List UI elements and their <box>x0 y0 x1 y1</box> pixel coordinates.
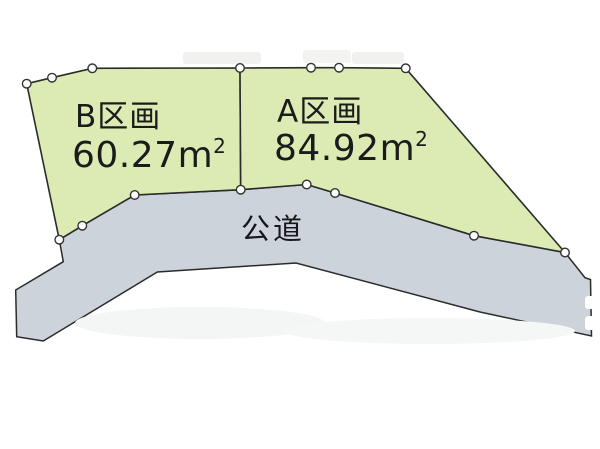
parcel-b-area-value: 60.27 <box>72 135 178 176</box>
survey-point-marker <box>55 235 64 244</box>
survey-point-marker <box>88 64 97 73</box>
survey-point-marker <box>130 191 139 200</box>
erased-label-smudge <box>183 52 261 64</box>
erased-label-smudge <box>585 316 600 330</box>
survey-point-marker <box>302 180 311 189</box>
survey-point-marker <box>236 185 245 194</box>
parcel-b-area-label: 60.27m2 <box>72 134 226 176</box>
parcel-a-area-value: 84.92 <box>274 128 380 169</box>
parcel-b-name-text: B区画 <box>75 99 161 135</box>
erased-label-smudge <box>585 296 600 309</box>
parcel-a-area-unit: m <box>380 128 416 169</box>
road-name-label: 公道 <box>241 212 305 246</box>
erased-label-smudge <box>303 50 351 63</box>
survey-point-marker <box>561 248 570 257</box>
survey-point-marker <box>401 64 410 73</box>
survey-point-marker <box>236 64 245 73</box>
land-plot-diagram: B区画 60.27m2 A区画 84.92m2 公道 <box>0 0 600 449</box>
parcel-a-area-label: 84.92m2 <box>274 127 428 169</box>
road-name-text: 公道 <box>241 212 305 246</box>
survey-point-marker <box>470 231 479 240</box>
survey-point-marker <box>48 73 57 82</box>
parcel-a-area-unit-sup: 2 <box>415 127 428 151</box>
parcel-b-area-unit: m <box>178 135 214 176</box>
survey-point-marker <box>335 63 344 72</box>
survey-point-marker <box>331 189 340 198</box>
erased-label-smudge <box>75 307 325 339</box>
parcel-b-name-label: B区画 <box>75 99 161 135</box>
survey-point-marker <box>78 221 87 230</box>
erased-label-smudge <box>352 52 404 64</box>
plot-diagram-canvas: B区画 60.27m2 A区画 84.92m2 公道 <box>0 0 600 449</box>
survey-point-marker <box>307 63 316 72</box>
parcel-a-name-label: A区画 <box>277 94 363 130</box>
parcel-a-name-text: A区画 <box>277 94 363 130</box>
survey-point-marker <box>22 79 31 88</box>
parcel-b-area-unit-sup: 2 <box>213 134 226 158</box>
erased-label-smudge <box>285 318 575 344</box>
